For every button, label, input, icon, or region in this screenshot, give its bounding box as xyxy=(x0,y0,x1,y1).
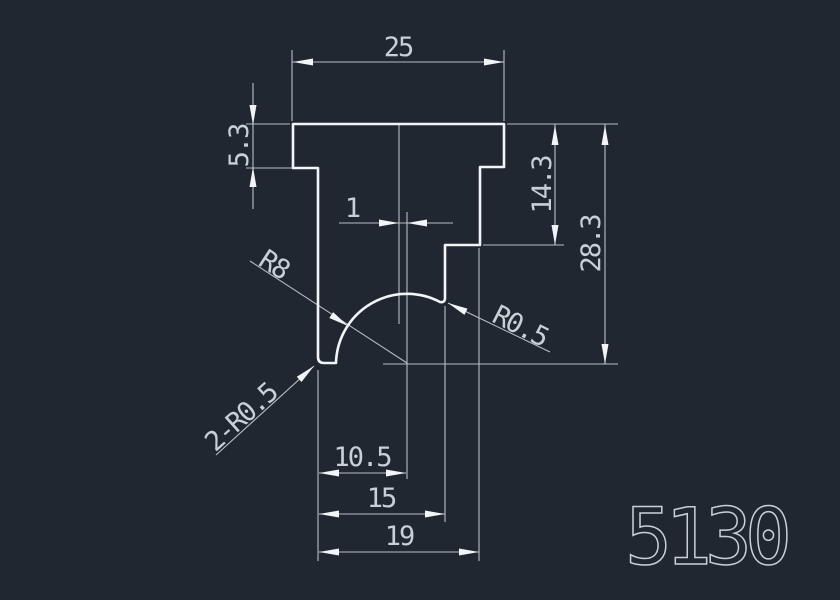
drawing-canvas: 25 5.3 1 14.3 28.3 R8 R0.5 2-R0.5 10.5 1… xyxy=(0,0,840,600)
dim-overall-height-label: 28.3 xyxy=(576,215,607,273)
dim-bottom-1-label: 10.5 xyxy=(333,442,391,473)
dim-top-width-label: 25 xyxy=(384,32,413,63)
dim-bottom-2-label: 15 xyxy=(367,483,396,514)
dim-flange-height-label: 5.3 xyxy=(224,124,255,168)
cad-viewport: 25 5.3 1 14.3 28.3 R8 R0.5 2-R0.5 10.5 1… xyxy=(0,0,840,600)
dim-center-offset-label: 1 xyxy=(345,193,360,224)
part-number: 5130 xyxy=(625,493,787,583)
dim-bottom-3-label: 19 xyxy=(385,521,414,552)
dim-right-step-label: 14.3 xyxy=(527,156,558,214)
